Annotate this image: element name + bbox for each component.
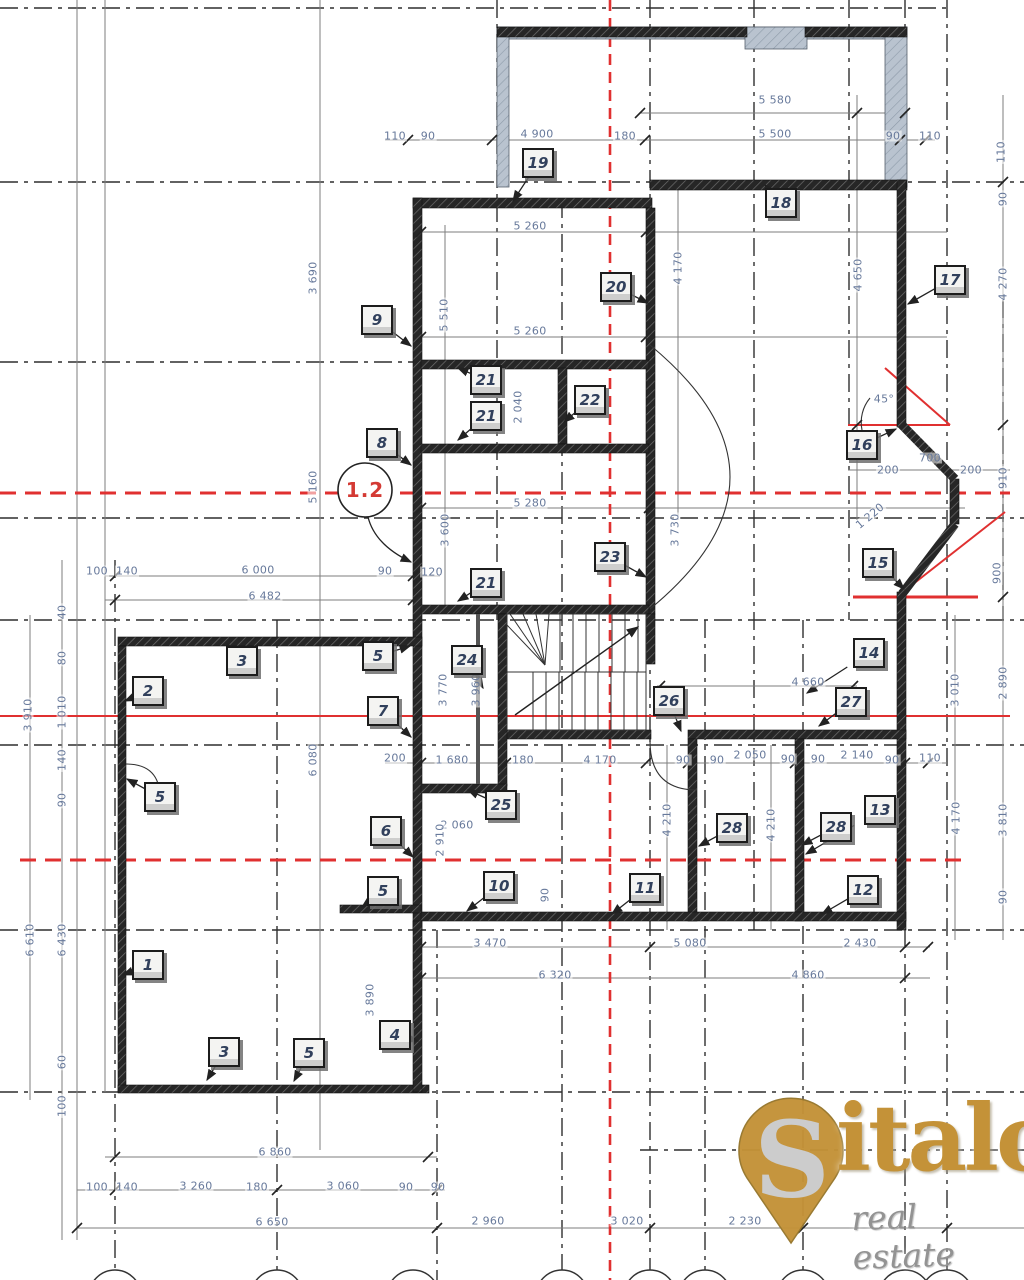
room-label-15: 15 [862,548,894,578]
room-label-10: 10 [483,871,515,901]
dimension-text: 90 [430,1182,447,1193]
logo-brand-initial: S [754,1098,830,1222]
dimension-text: 6 482 [248,591,283,602]
room-label-13: 13 [864,795,896,825]
dimension-text: 90 [57,792,68,809]
room-label-5: 5 [144,782,176,812]
dimension-text: 90 [540,887,551,904]
dimension-text: 2 140 [840,750,875,761]
room-label-16: 16 [846,430,878,460]
room-label-21: 21 [470,568,502,598]
dimension-text: 90 [998,889,1009,906]
dimension-text: 3 770 [438,673,449,708]
dimension-text: 4 210 [766,808,777,843]
dimension-text: 110 [918,131,942,142]
dimension-text: 910 [998,466,1009,490]
dimension-text: 5 510 [439,298,450,333]
room-label-12: 12 [847,875,879,905]
dimension-text: 110 [383,131,407,142]
dimension-text: 110 [996,140,1007,164]
dimension-text: 110 [918,753,942,764]
dimension-text: 90 [675,755,692,766]
dimension-text: 100 [85,1182,109,1193]
room-label-18: 18 [765,188,797,218]
dimension-text: 900 [992,561,1003,585]
room-label-20: 20 [600,272,632,302]
dimension-text: 90 [398,1182,415,1193]
dimension-text: 2 910 [435,823,446,858]
dimension-text: 4 900 [520,129,555,140]
dimension-text: 40 [57,604,68,621]
axis-bubble-label: 1.2 [346,478,384,502]
room-label-5: 5 [293,1038,325,1068]
dimension-text: 200 [959,465,983,476]
room-label-14: 14 [853,638,885,668]
dimension-text: 1 010 [57,695,68,730]
dimension-text: 4 210 [662,803,673,838]
dimension-text: 5 260 [513,221,548,232]
dimension-text: 5 580 [758,95,793,106]
room-label-6: 6 [370,816,402,846]
dimension-text: 6 860 [258,1147,293,1158]
room-label-28: 28 [716,813,748,843]
room-label-26: 26 [653,686,685,716]
room-label-23: 23 [594,542,626,572]
dimension-text: 3 060 [326,1181,361,1192]
dimension-text: 4 650 [853,258,864,293]
room-label-24: 24 [451,645,483,675]
dimension-text: 5 260 [513,326,548,337]
dimension-text: 2 960 [471,1216,506,1227]
dimension-text: 90 [885,131,902,142]
dimension-text: 6 610 [25,923,36,958]
room-label-11: 11 [629,873,661,903]
dimension-text: 90 [884,755,901,766]
dimension-text: 180 [613,131,637,142]
dimension-text: 4 860 [791,970,826,981]
dimension-text: 90 [709,755,726,766]
dimension-text: 6 430 [57,923,68,958]
room-label-1: 1 [132,950,164,980]
dimension-text: 3 730 [670,513,681,548]
room-label-21: 21 [470,365,502,395]
dimension-text: 3 690 [308,261,319,296]
dimension-text: 200 [876,465,900,476]
dimension-text: 4 170 [583,755,618,766]
dimension-text: 90 [998,191,1009,208]
room-label-7: 7 [367,696,399,726]
room-label-5: 5 [367,876,399,906]
dimension-text: 4 660 [791,677,826,688]
dimension-text: 90 [810,754,827,765]
room-label-27: 27 [835,687,867,717]
dimension-text: 140 [57,748,68,772]
dimension-text: 2 430 [843,938,878,949]
dimension-text: 3 260 [179,1181,214,1192]
room-label-22: 22 [574,385,606,415]
dimension-text: 3 600 [440,513,451,548]
dimension-text: 4 170 [673,251,684,286]
dimension-text: 60 [57,1054,68,1071]
dimension-text: 5 160 [308,470,319,505]
room-label-3: 3 [226,646,258,676]
dimension-text: 90 [780,754,797,765]
dimension-text: 90 [420,131,437,142]
dimension-text: 3 020 [610,1216,645,1227]
dimension-text: 120 [420,567,444,578]
dimension-text: 100 [57,1094,68,1118]
dimension-text: 5 080 [673,938,708,949]
dimension-text: 200 [383,753,407,764]
dimension-text: 3 910 [23,698,34,733]
room-label-25: 25 [485,790,517,820]
dimension-text: 700 [918,453,942,464]
dimension-text: 6 650 [255,1217,290,1228]
dimension-text: 100 [85,566,109,577]
dimension-text: 3 810 [998,803,1009,838]
dimension-text: 80 [57,650,68,667]
room-label-17: 17 [934,265,966,295]
dimension-text: 3 960 [471,673,482,708]
dimension-text: 45° [873,394,895,405]
logo-brand-text: italo [836,1088,1024,1188]
dimension-text: 6 000 [241,565,276,576]
dimension-text: 3 470 [473,938,508,949]
dimension-text: 2 050 [733,750,768,761]
room-label-2: 2 [132,676,164,706]
room-label-4: 4 [379,1020,411,1050]
dimension-text: 6 080 [308,743,319,778]
dimension-text: 2 890 [998,666,1009,701]
dimension-text: 4 270 [998,267,1009,302]
dimension-text: 140 [115,566,139,577]
dimension-text: 3 890 [365,983,376,1018]
dimension-text: 3 010 [950,673,961,708]
room-label-21: 21 [470,401,502,431]
dimension-text: 1 680 [435,755,470,766]
room-label-5: 5 [362,641,394,671]
dimension-text: 90 [377,566,394,577]
floor-plan-canvas: 1.2 S italo real estate 5 580110904 9001… [0,0,1024,1280]
room-label-19: 19 [522,148,554,178]
dimension-text: 140 [115,1182,139,1193]
room-label-28: 28 [820,812,852,842]
dimension-text: 4 170 [951,801,962,836]
dimension-text: 180 [511,755,535,766]
logo-tagline: real estate [851,1193,1024,1277]
room-label-9: 9 [361,305,393,335]
dimension-text: 6 320 [538,970,573,981]
dimension-text: 180 [245,1182,269,1193]
dimension-text: 5 500 [758,129,793,140]
dimension-text: 5 280 [513,498,548,509]
room-label-8: 8 [366,428,398,458]
room-label-3: 3 [208,1037,240,1067]
dimension-text: 2 040 [513,390,524,425]
